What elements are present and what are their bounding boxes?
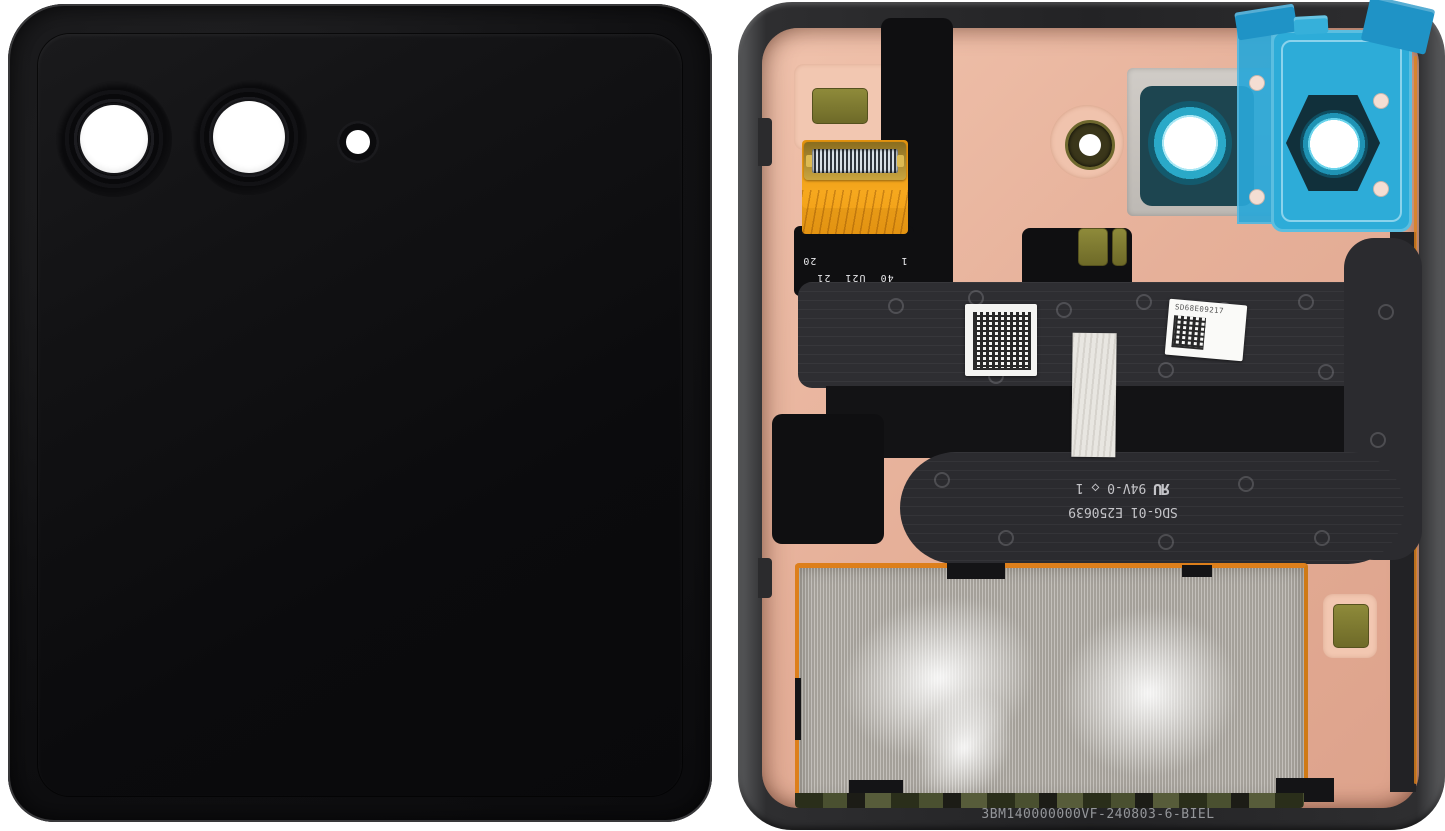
rivet-icon — [1136, 294, 1152, 310]
flash-hole-rear — [1065, 120, 1115, 170]
cover-glass-front-panel — [8, 4, 712, 822]
rivet-icon — [1056, 302, 1072, 318]
contact-pad-right — [1333, 604, 1369, 648]
connector-pin-row — [812, 149, 898, 173]
connector-end-tab — [897, 155, 904, 167]
part-number-text: 3BM140000000VF-240803-6-BIEL — [858, 807, 1338, 822]
rivet-icon — [1378, 304, 1394, 320]
screw-hole-icon — [1373, 93, 1389, 109]
ul-recognized-mark-icon: ЯU — [1154, 480, 1170, 498]
rivet-icon — [1318, 364, 1334, 380]
rear-assembly-frame: 40 U21 21 1 20 SD68E09217 SDG-01 E250639… — [738, 2, 1445, 830]
contact-pad — [1078, 228, 1108, 266]
serial-label-text: SD68E09217 — [1175, 302, 1225, 315]
foil-left-notch — [795, 678, 801, 740]
rivet-icon — [998, 530, 1014, 546]
flex-ul-marking: SDG-01 E250639 ЯU 94V-0 ◇ 1 — [938, 466, 1308, 522]
rivet-icon — [1298, 294, 1314, 310]
ultrawide-camera-aperture — [213, 101, 285, 173]
white-tape-strip — [1071, 333, 1116, 457]
pcb-edge-strip — [795, 793, 1304, 808]
rivet-icon — [888, 298, 904, 314]
camera1-lens-ring-icon — [1148, 101, 1232, 185]
foil-top-notch — [1182, 565, 1212, 577]
screw-hole-icon — [1373, 181, 1389, 197]
contact-pad-thin — [1112, 228, 1127, 266]
pin-marking-near: 1 20 — [802, 255, 907, 266]
datamatrix-label — [965, 304, 1037, 376]
rivet-icon — [1158, 534, 1174, 550]
flex-part-text: SDG-01 E250639 — [1068, 504, 1178, 519]
ultrawide-camera-lens-icon — [191, 79, 307, 195]
black-panel-cutout-left — [772, 414, 884, 544]
black-panel-under-band — [826, 386, 1406, 458]
antenna-contact-pad — [812, 88, 868, 124]
qr-code-icon — [1171, 315, 1206, 350]
frame-notch — [758, 558, 772, 598]
screw-hole-icon — [1249, 189, 1265, 205]
datamatrix-code-icon — [973, 312, 1031, 370]
flash-hole-front — [337, 121, 379, 163]
serial-label: SD68E09217 — [1165, 299, 1248, 362]
rivet-icon — [1314, 530, 1330, 546]
ul-rating-text: 94V-0 ◇ 1 — [1076, 480, 1154, 495]
flash-aperture-front — [346, 130, 370, 154]
rivet-icon — [1158, 362, 1174, 378]
camera2-lens-ring-icon — [1300, 110, 1368, 178]
film-fold-tab — [1294, 15, 1329, 35]
main-camera-lens-icon — [56, 81, 172, 197]
foil-top-notch — [947, 563, 1005, 579]
flex-trace-lines — [802, 190, 908, 234]
main-camera-aperture — [80, 105, 148, 173]
screw-hole-icon — [1249, 75, 1265, 91]
frame-notch — [758, 118, 772, 166]
pin-marking-far: 40 U21 21 — [816, 272, 893, 283]
foil-shield-panel — [795, 563, 1308, 800]
board-to-board-connector — [804, 142, 906, 180]
connector-pin-marking: 40 U21 21 1 20 — [796, 234, 914, 286]
flash-aperture-rear — [1079, 134, 1101, 156]
rivet-icon — [1370, 432, 1386, 448]
